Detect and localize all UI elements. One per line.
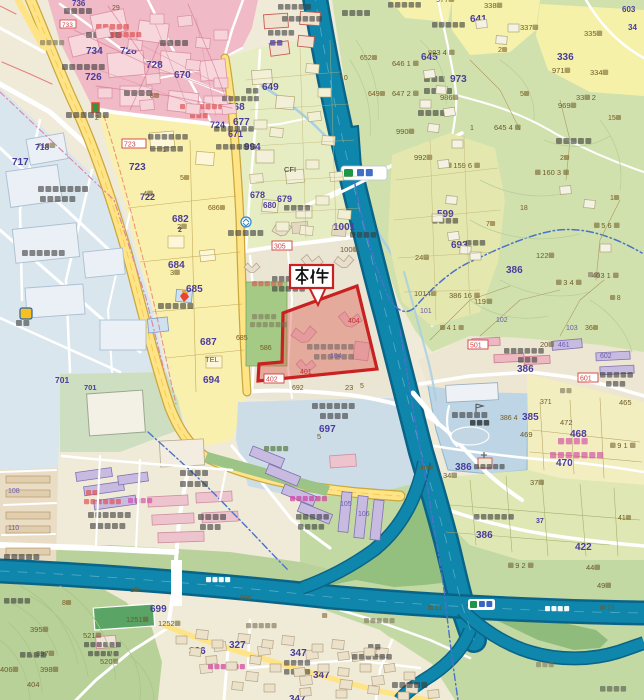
svg-text:404: 404 xyxy=(348,318,360,325)
svg-text:15: 15 xyxy=(607,605,615,612)
svg-text:718: 718 xyxy=(37,141,50,150)
svg-text:20: 20 xyxy=(540,340,548,349)
svg-text:103: 103 xyxy=(566,325,578,332)
svg-text:5: 5 xyxy=(360,383,364,390)
svg-text:24: 24 xyxy=(415,253,423,262)
svg-text:992: 992 xyxy=(414,153,427,162)
svg-text:4 1: 4 1 xyxy=(447,325,457,332)
svg-text:37: 37 xyxy=(536,518,544,525)
svg-text:100: 100 xyxy=(340,245,353,254)
svg-text:386: 386 xyxy=(506,265,523,276)
svg-text:699: 699 xyxy=(150,604,167,615)
svg-text:1251: 1251 xyxy=(126,615,143,624)
svg-text:1014: 1014 xyxy=(414,289,431,298)
svg-text:34: 34 xyxy=(443,471,451,480)
svg-text:733: 733 xyxy=(62,22,73,29)
svg-text:108: 108 xyxy=(8,488,20,495)
svg-text:601: 601 xyxy=(580,376,592,383)
svg-text:385: 385 xyxy=(522,412,539,423)
svg-text:105: 105 xyxy=(340,501,352,508)
svg-text:1252: 1252 xyxy=(158,619,175,628)
svg-text:37: 37 xyxy=(530,478,538,487)
svg-text:603: 603 xyxy=(622,5,636,14)
svg-text:15: 15 xyxy=(608,115,616,122)
svg-text:685: 685 xyxy=(186,284,203,295)
svg-text:110: 110 xyxy=(8,525,19,532)
svg-text:404: 404 xyxy=(27,680,40,689)
svg-text:TEL: TEL xyxy=(205,355,219,364)
svg-text:734: 734 xyxy=(86,46,103,57)
svg-text:723: 723 xyxy=(129,162,146,173)
svg-text:3 4: 3 4 xyxy=(563,278,573,287)
svg-text:9 2: 9 2 xyxy=(515,561,525,570)
svg-text:647 2: 647 2 xyxy=(392,89,411,98)
svg-text:371: 371 xyxy=(540,399,552,406)
svg-text:338: 338 xyxy=(484,1,497,10)
svg-text:969: 969 xyxy=(558,101,571,110)
svg-text:5: 5 xyxy=(180,175,184,182)
svg-text:398: 398 xyxy=(40,665,53,674)
svg-text:11: 11 xyxy=(435,605,442,612)
svg-text:723: 723 xyxy=(124,142,136,149)
svg-text:1: 1 xyxy=(610,195,614,202)
svg-text:461: 461 xyxy=(558,342,570,349)
svg-text:692: 692 xyxy=(292,385,304,392)
svg-text:694: 694 xyxy=(203,375,220,386)
svg-text:649: 649 xyxy=(368,91,380,98)
svg-text:680: 680 xyxy=(263,201,277,210)
svg-text:679: 679 xyxy=(277,194,292,204)
svg-text:717: 717 xyxy=(12,157,29,168)
svg-text:402: 402 xyxy=(266,377,278,384)
svg-text:327: 327 xyxy=(229,640,246,651)
svg-text:678: 678 xyxy=(250,190,265,200)
svg-text:9 1: 9 1 xyxy=(617,441,627,450)
svg-text:18: 18 xyxy=(520,205,528,212)
svg-text:386: 386 xyxy=(476,530,493,541)
svg-text:36: 36 xyxy=(585,325,593,332)
svg-text:23: 23 xyxy=(345,383,353,392)
svg-text:335: 335 xyxy=(584,29,597,38)
svg-text:386: 386 xyxy=(455,462,472,473)
svg-text:977: 977 xyxy=(436,0,449,4)
svg-text:395: 395 xyxy=(30,625,43,634)
svg-text:336: 336 xyxy=(557,52,574,63)
svg-text:1001: 1001 xyxy=(333,222,356,233)
svg-text:46: 46 xyxy=(420,465,428,472)
svg-text:697: 697 xyxy=(319,424,336,435)
svg-text:41: 41 xyxy=(618,515,626,522)
svg-text:49: 49 xyxy=(597,581,605,590)
svg-text:33: 33 xyxy=(576,93,584,102)
svg-text:119: 119 xyxy=(474,297,486,306)
svg-text:386 16: 386 16 xyxy=(449,291,472,300)
svg-text:470: 470 xyxy=(556,458,573,469)
svg-text:5: 5 xyxy=(317,432,321,441)
svg-text:347: 347 xyxy=(290,648,307,659)
svg-text:5: 5 xyxy=(520,91,524,98)
svg-text:160 3: 160 3 xyxy=(542,168,561,177)
svg-text:5 6: 5 6 xyxy=(601,221,611,230)
svg-text:122: 122 xyxy=(536,251,549,260)
svg-text:602: 602 xyxy=(600,353,612,360)
svg-text:337: 337 xyxy=(520,23,533,32)
svg-text:520: 520 xyxy=(100,657,113,666)
svg-text:2: 2 xyxy=(177,222,181,231)
svg-text:687: 687 xyxy=(200,337,217,348)
svg-text:501: 501 xyxy=(470,343,482,350)
svg-text:34: 34 xyxy=(628,23,637,32)
svg-text:386: 386 xyxy=(517,364,534,375)
svg-text:2: 2 xyxy=(592,93,596,102)
svg-text:334: 334 xyxy=(590,68,603,77)
svg-text:646 1: 646 1 xyxy=(392,59,411,68)
svg-text:422: 422 xyxy=(575,542,592,553)
svg-text:1: 1 xyxy=(162,147,166,154)
svg-text:106: 106 xyxy=(358,511,370,518)
svg-text:2: 2 xyxy=(560,155,564,162)
svg-text:645 4: 645 4 xyxy=(494,123,513,132)
svg-text:8: 8 xyxy=(150,93,154,100)
svg-text:990: 990 xyxy=(396,127,409,136)
svg-text:1: 1 xyxy=(470,125,474,132)
svg-text:726: 726 xyxy=(85,72,102,83)
svg-text:44: 44 xyxy=(586,563,594,572)
svg-text:701: 701 xyxy=(55,375,69,385)
svg-text:4: 4 xyxy=(143,189,147,198)
svg-text:686: 686 xyxy=(208,205,220,212)
svg-text:649: 649 xyxy=(262,82,279,93)
svg-text:29: 29 xyxy=(112,5,120,12)
svg-text:8: 8 xyxy=(62,600,66,607)
svg-text:1: 1 xyxy=(130,587,134,594)
svg-text:472: 472 xyxy=(560,418,573,427)
svg-text:586: 586 xyxy=(260,345,272,352)
svg-text:2: 2 xyxy=(498,47,502,54)
svg-text:698: 698 xyxy=(240,595,252,602)
svg-text:465: 465 xyxy=(619,398,632,407)
svg-text:386 4: 386 4 xyxy=(500,415,518,422)
svg-text:2: 2 xyxy=(95,115,99,122)
svg-text:971: 971 xyxy=(552,66,565,75)
svg-text:102: 102 xyxy=(496,317,508,324)
svg-text:736: 736 xyxy=(72,0,86,8)
svg-text:7: 7 xyxy=(486,221,490,228)
svg-text:521: 521 xyxy=(83,631,96,640)
svg-text:8: 8 xyxy=(617,295,621,302)
svg-text:652: 652 xyxy=(360,55,372,62)
svg-text:CFI: CFI xyxy=(284,165,296,174)
svg-text:983 4: 983 4 xyxy=(428,48,447,57)
svg-text:406: 406 xyxy=(0,665,13,674)
svg-text:305: 305 xyxy=(274,244,286,251)
svg-text:10: 10 xyxy=(340,75,348,82)
svg-text:973: 973 xyxy=(450,74,467,85)
svg-text:701: 701 xyxy=(84,383,97,392)
svg-text:104: 104 xyxy=(330,353,342,360)
svg-text:101: 101 xyxy=(420,308,432,315)
svg-text:159 6: 159 6 xyxy=(453,161,472,170)
svg-text:401: 401 xyxy=(300,369,312,376)
svg-text:3: 3 xyxy=(170,268,174,277)
svg-text:685: 685 xyxy=(236,335,248,342)
svg-text:469: 469 xyxy=(520,430,533,439)
